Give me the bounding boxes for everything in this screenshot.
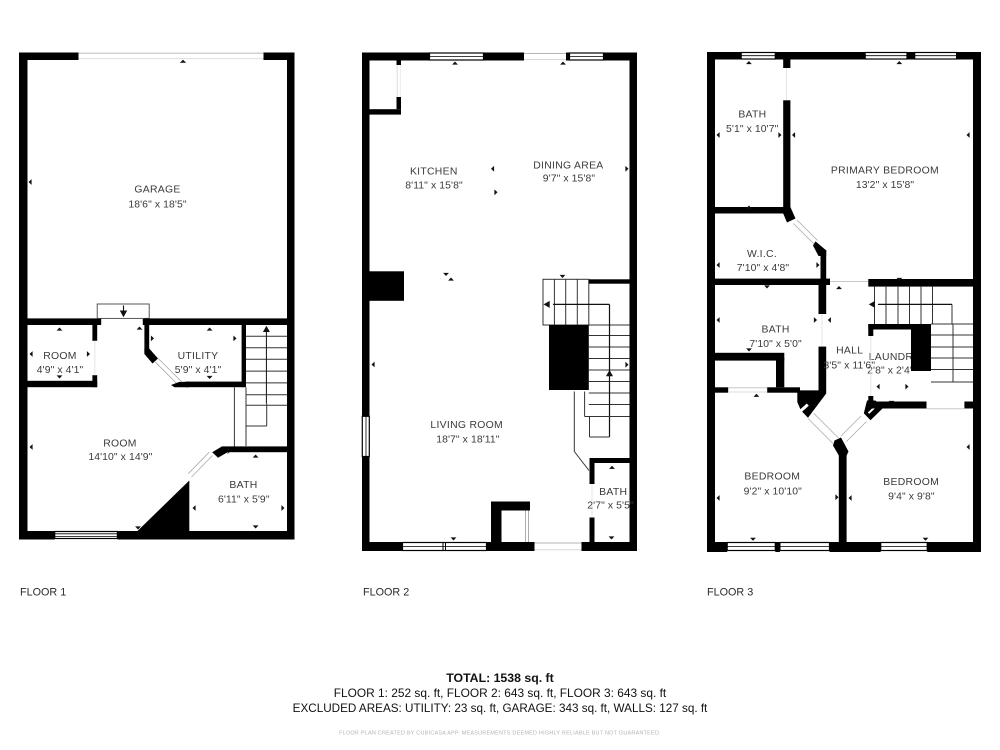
svg-text:FLOOR PLAN CREATED BY CUBICASA: FLOOR PLAN CREATED BY CUBICASA APP. MEAS… <box>339 731 661 737</box>
svg-text:7'10" x 5'0": 7'10" x 5'0" <box>749 339 802 350</box>
svg-text:ROOM: ROOM <box>103 438 137 449</box>
svg-text:W.I.C.: W.I.C. <box>747 249 777 260</box>
svg-text:GARAGE: GARAGE <box>134 185 180 196</box>
svg-text:14'10" x 14'9": 14'10" x 14'9" <box>88 452 152 463</box>
svg-text:3'5" x 11'6": 3'5" x 11'6" <box>823 361 875 372</box>
svg-text:9'4" x 9'8": 9'4" x 9'8" <box>888 492 935 503</box>
svg-text:FLOOR 1: FLOOR 1 <box>20 587 66 599</box>
svg-text:7'10" x 4'8": 7'10" x 4'8" <box>737 263 790 274</box>
svg-text:18'7" x 18'11": 18'7" x 18'11" <box>436 435 500 446</box>
svg-text:BATH: BATH <box>762 324 790 335</box>
svg-text:LIVING ROOM: LIVING ROOM <box>430 420 503 431</box>
svg-text:PRIMARY BEDROOM: PRIMARY BEDROOM <box>831 165 939 176</box>
svg-text:BATH: BATH <box>738 109 766 120</box>
svg-text:KITCHEN: KITCHEN <box>410 166 458 177</box>
svg-text:6'11" x 5'9": 6'11" x 5'9" <box>218 494 270 505</box>
svg-text:UTILITY: UTILITY <box>178 351 219 362</box>
svg-text:TOTAL: 1538 sq. ft: TOTAL: 1538 sq. ft <box>446 671 554 685</box>
svg-text:ROOM: ROOM <box>43 351 77 362</box>
svg-text:2'7" x 5'5": 2'7" x 5'5" <box>587 500 634 511</box>
svg-text:5'9" x 4'1": 5'9" x 4'1" <box>175 365 222 376</box>
svg-text:BEDROOM: BEDROOM <box>883 477 939 488</box>
svg-text:9'7" x 15'8": 9'7" x 15'8" <box>543 173 596 184</box>
svg-text:FLOOR 2: FLOOR 2 <box>363 587 409 599</box>
svg-text:BEDROOM: BEDROOM <box>744 472 800 483</box>
svg-text:4'9" x 4'1": 4'9" x 4'1" <box>37 365 84 376</box>
svg-text:BATH: BATH <box>599 487 627 498</box>
svg-text:9'2" x 10'10": 9'2" x 10'10" <box>744 486 802 497</box>
svg-text:13'2" x 15'8": 13'2" x 15'8" <box>856 180 914 191</box>
svg-text:BATH: BATH <box>229 480 257 491</box>
svg-text:HALL: HALL <box>836 346 863 357</box>
svg-text:FLOOR 3: FLOOR 3 <box>707 587 753 599</box>
svg-text:5'1" x 10'7": 5'1" x 10'7" <box>726 124 779 135</box>
svg-text:FLOOR 1: 252 sq. ft, FLOOR 2:: FLOOR 1: 252 sq. ft, FLOOR 2: 643 sq. ft… <box>334 686 667 700</box>
svg-text:8'11" x 15'8": 8'11" x 15'8" <box>405 180 463 191</box>
svg-text:DINING AREA: DINING AREA <box>533 160 603 171</box>
svg-text:18'6" x 18'5": 18'6" x 18'5" <box>128 199 186 210</box>
svg-text:EXCLUDED AREAS: UTILITY: 23 sq: EXCLUDED AREAS: UTILITY: 23 sq. ft, GARA… <box>293 702 708 715</box>
